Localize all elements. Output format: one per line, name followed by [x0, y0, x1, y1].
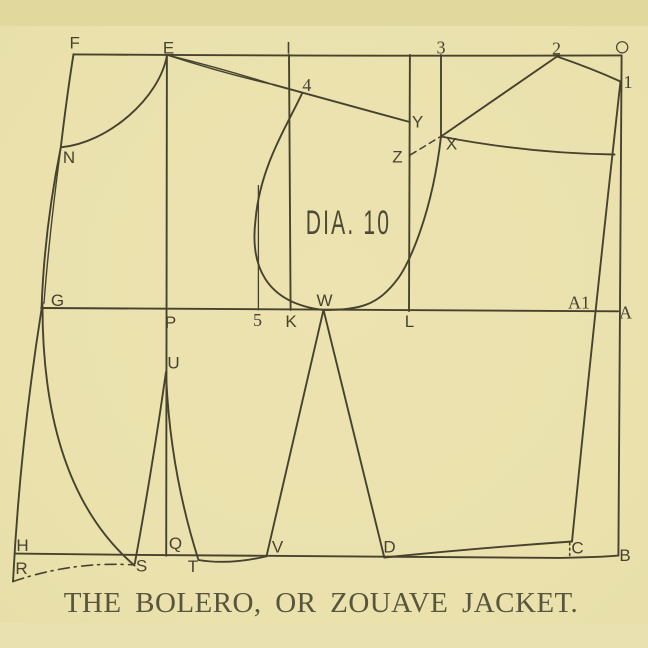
svg-text:A1: A1	[568, 293, 590, 313]
svg-text:3: 3	[437, 38, 446, 58]
svg-text:5: 5	[253, 310, 262, 330]
svg-text:T: T	[188, 557, 198, 576]
svg-text:D: D	[383, 538, 395, 557]
svg-text:Z: Z	[392, 148, 402, 167]
svg-text:H: H	[16, 536, 28, 555]
svg-text:4: 4	[302, 75, 311, 95]
svg-text:Y: Y	[412, 113, 423, 132]
svg-text:C: C	[571, 539, 583, 558]
svg-text:N: N	[63, 148, 75, 167]
svg-text:X: X	[446, 135, 457, 154]
svg-text:Q: Q	[169, 534, 182, 553]
svg-text:F: F	[70, 34, 80, 53]
svg-text:DIA. 10: DIA. 10	[306, 203, 391, 241]
svg-text:I: I	[286, 38, 291, 57]
svg-text:L: L	[405, 312, 414, 331]
svg-text:U: U	[167, 354, 179, 373]
svg-text:P: P	[165, 313, 176, 332]
svg-text:1: 1	[624, 72, 633, 92]
svg-text:B: B	[619, 546, 630, 565]
svg-text:K: K	[285, 312, 297, 331]
svg-text:R: R	[15, 559, 27, 578]
svg-text:G: G	[51, 291, 64, 310]
svg-text:V: V	[272, 538, 284, 557]
svg-text:W: W	[316, 291, 332, 310]
svg-text:A: A	[619, 303, 632, 323]
svg-text:S: S	[136, 557, 147, 576]
svg-text:2: 2	[552, 39, 561, 59]
svg-text:E: E	[163, 38, 174, 57]
svg-text:THE BOLERO, OR ZOUAVE JACKET.: THE BOLERO, OR ZOUAVE JACKET.	[64, 587, 578, 619]
